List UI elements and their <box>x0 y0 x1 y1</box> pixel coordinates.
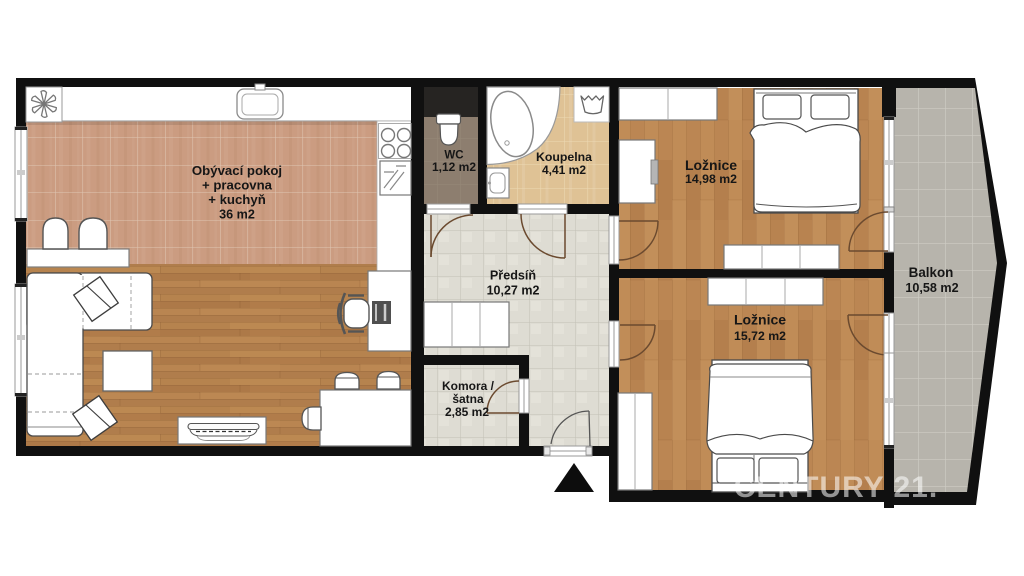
svg-text:Koupelna: Koupelna <box>536 150 592 164</box>
svg-text:10,27 m2: 10,27 m2 <box>487 284 540 298</box>
svg-text:+ pracovna: + pracovna <box>202 178 273 193</box>
svg-text:4,41 m2: 4,41 m2 <box>542 163 586 177</box>
svg-text:Ložnice: Ložnice <box>685 157 737 173</box>
svg-text:15,72 m2: 15,72 m2 <box>734 329 786 343</box>
svg-text:šatna: šatna <box>452 392 484 406</box>
svg-text:14,98 m2: 14,98 m2 <box>685 172 737 186</box>
svg-text:+ kuchyň: + kuchyň <box>208 192 266 207</box>
svg-text:1,12 m2: 1,12 m2 <box>432 160 476 174</box>
svg-text:36 m2: 36 m2 <box>219 208 255 222</box>
svg-text:2,85 m2: 2,85 m2 <box>445 405 489 419</box>
svg-text:10,58 m2: 10,58 m2 <box>905 281 958 295</box>
svg-text:CENTURY 21.: CENTURY 21. <box>734 471 938 504</box>
svg-text:Balkon: Balkon <box>909 265 954 280</box>
svg-text:Předsíň: Předsíň <box>490 269 536 283</box>
svg-text:Komora /: Komora / <box>442 379 495 393</box>
svg-text:Ložnice: Ložnice <box>734 312 786 328</box>
svg-text:Obývací pokoj: Obývací pokoj <box>192 163 282 178</box>
